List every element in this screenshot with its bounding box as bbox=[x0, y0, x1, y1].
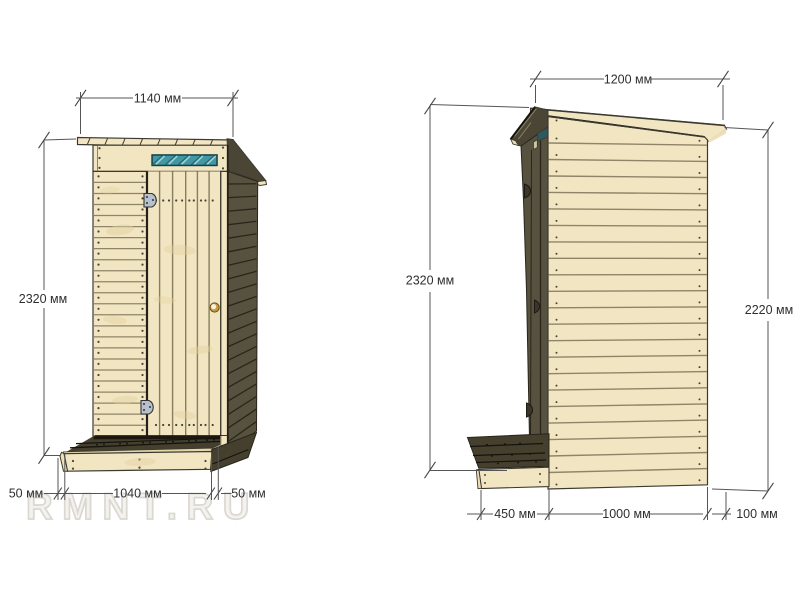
svg-text:1040 мм: 1040 мм bbox=[113, 487, 161, 501]
svg-text:450 мм: 450 мм bbox=[494, 507, 536, 521]
svg-text:2320 мм: 2320 мм bbox=[19, 292, 67, 306]
svg-text:1140 мм: 1140 мм bbox=[134, 92, 182, 106]
svg-text:2220 мм: 2220 мм bbox=[745, 303, 793, 317]
svg-text:2320 мм: 2320 мм bbox=[406, 274, 454, 288]
svg-text:50 мм: 50 мм bbox=[9, 487, 44, 501]
svg-text:50 мм: 50 мм bbox=[231, 487, 266, 501]
svg-text:1000 мм: 1000 мм bbox=[602, 507, 650, 521]
svg-text:1200 мм: 1200 мм bbox=[604, 73, 652, 87]
svg-text:100 мм: 100 мм bbox=[736, 507, 778, 521]
